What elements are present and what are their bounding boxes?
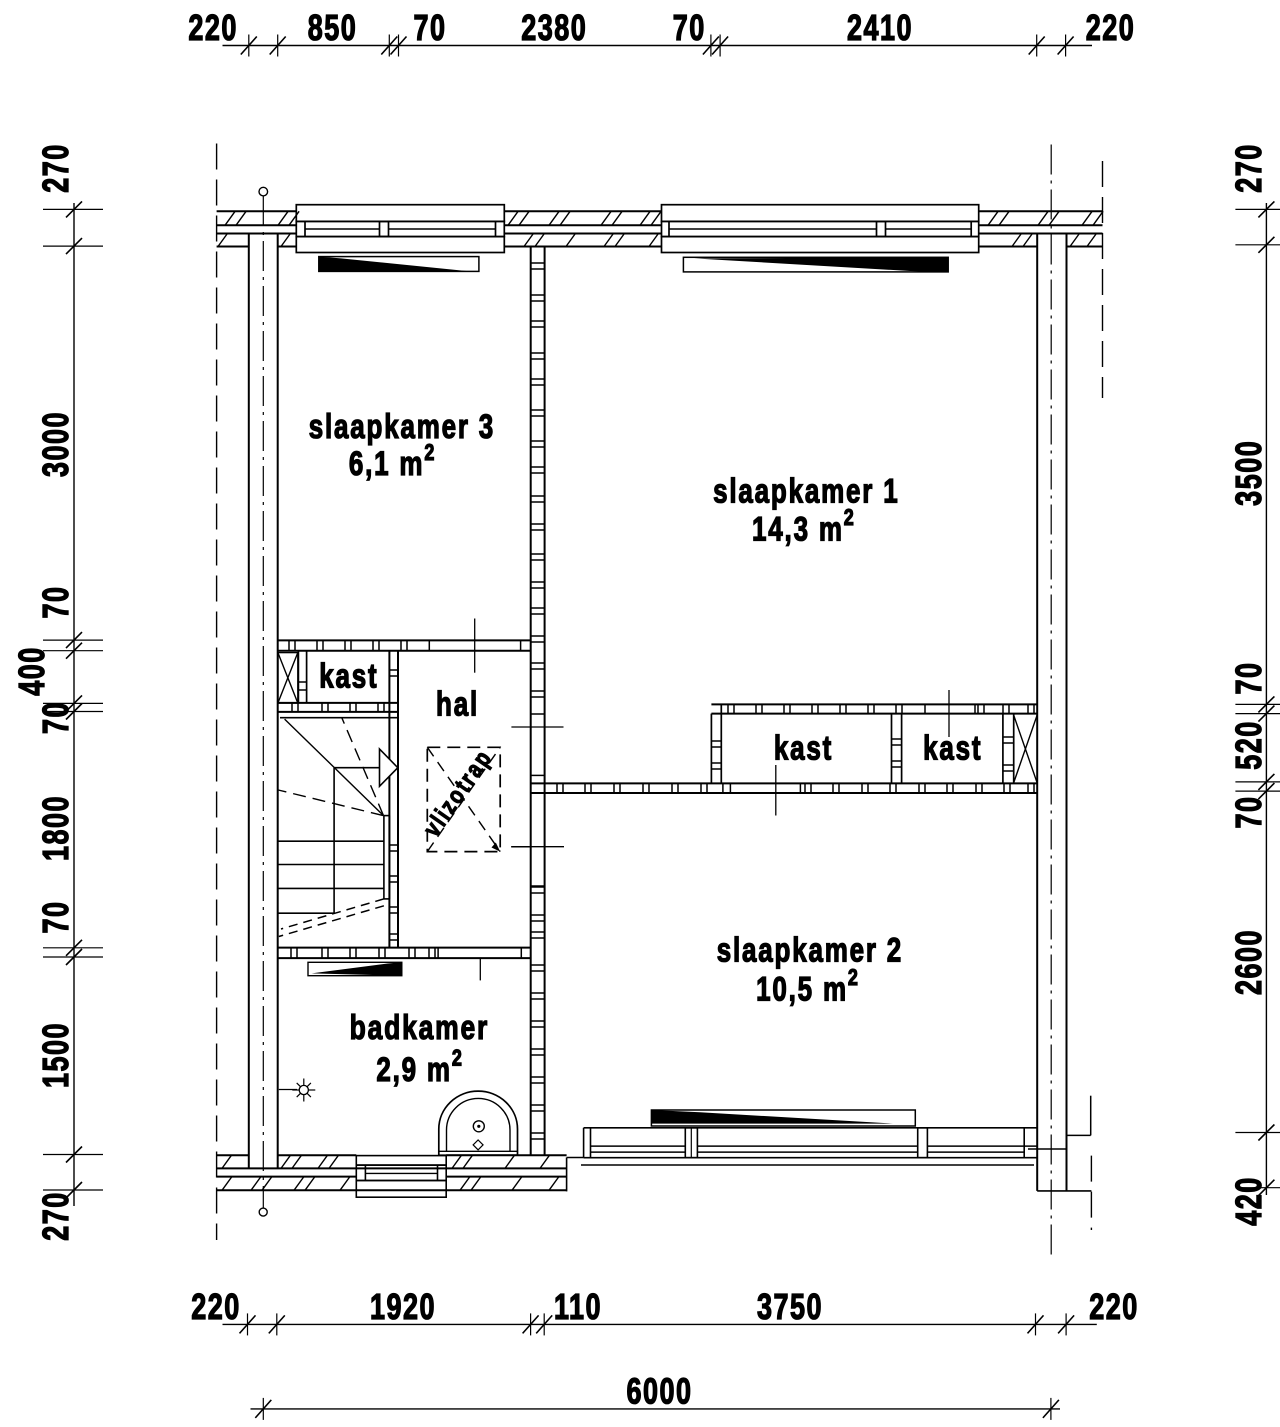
svg-text:vlizotrap: vlizotrap — [418, 744, 498, 842]
svg-text:420: 420 — [1228, 1176, 1269, 1226]
svg-text:270: 270 — [1228, 143, 1269, 193]
svg-text:2600: 2600 — [1228, 929, 1269, 995]
svg-text:kast: kast — [774, 730, 833, 767]
svg-text:10,5 m2: 10,5 m2 — [756, 965, 860, 1008]
svg-text:14,3 m2: 14,3 m2 — [752, 505, 856, 548]
svg-text:220: 220 — [1089, 1286, 1139, 1327]
svg-text:3000: 3000 — [35, 411, 76, 477]
svg-text:70: 70 — [673, 7, 706, 48]
svg-text:6000: 6000 — [626, 1371, 692, 1412]
svg-text:220: 220 — [191, 1286, 241, 1327]
svg-text:kast: kast — [923, 730, 982, 767]
svg-text:slaapkamer 2: slaapkamer 2 — [717, 932, 903, 969]
svg-text:220: 220 — [1086, 7, 1136, 48]
svg-text:520: 520 — [1228, 720, 1269, 770]
svg-text:6,1 m2: 6,1 m2 — [349, 440, 436, 483]
svg-text:220: 220 — [188, 7, 238, 48]
svg-text:3500: 3500 — [1228, 440, 1269, 506]
svg-text:850: 850 — [308, 7, 358, 48]
svg-text:2410: 2410 — [847, 7, 913, 48]
svg-text:1800: 1800 — [35, 795, 76, 861]
svg-text:1920: 1920 — [370, 1286, 436, 1327]
svg-text:110: 110 — [554, 1286, 602, 1327]
svg-text:70: 70 — [35, 701, 76, 734]
svg-text:70: 70 — [35, 585, 76, 618]
svg-text:70: 70 — [413, 7, 446, 48]
svg-text:3750: 3750 — [757, 1286, 823, 1327]
svg-text:slaapkamer 1: slaapkamer 1 — [713, 473, 899, 510]
svg-text:270: 270 — [35, 1191, 76, 1241]
svg-text:400: 400 — [11, 646, 52, 696]
svg-text:badkamer: badkamer — [350, 1008, 490, 1047]
svg-text:270: 270 — [35, 143, 76, 193]
svg-text:2,9 m2: 2,9 m2 — [376, 1045, 463, 1088]
svg-text:1500: 1500 — [35, 1022, 76, 1088]
svg-text:slaapkamer 3: slaapkamer 3 — [309, 409, 495, 446]
svg-text:70: 70 — [1228, 661, 1269, 694]
svg-text:hal: hal — [436, 686, 479, 723]
svg-text:2380: 2380 — [521, 7, 587, 48]
svg-text:70: 70 — [1228, 795, 1269, 828]
svg-text:kast: kast — [319, 658, 378, 695]
svg-text:70: 70 — [35, 900, 76, 933]
